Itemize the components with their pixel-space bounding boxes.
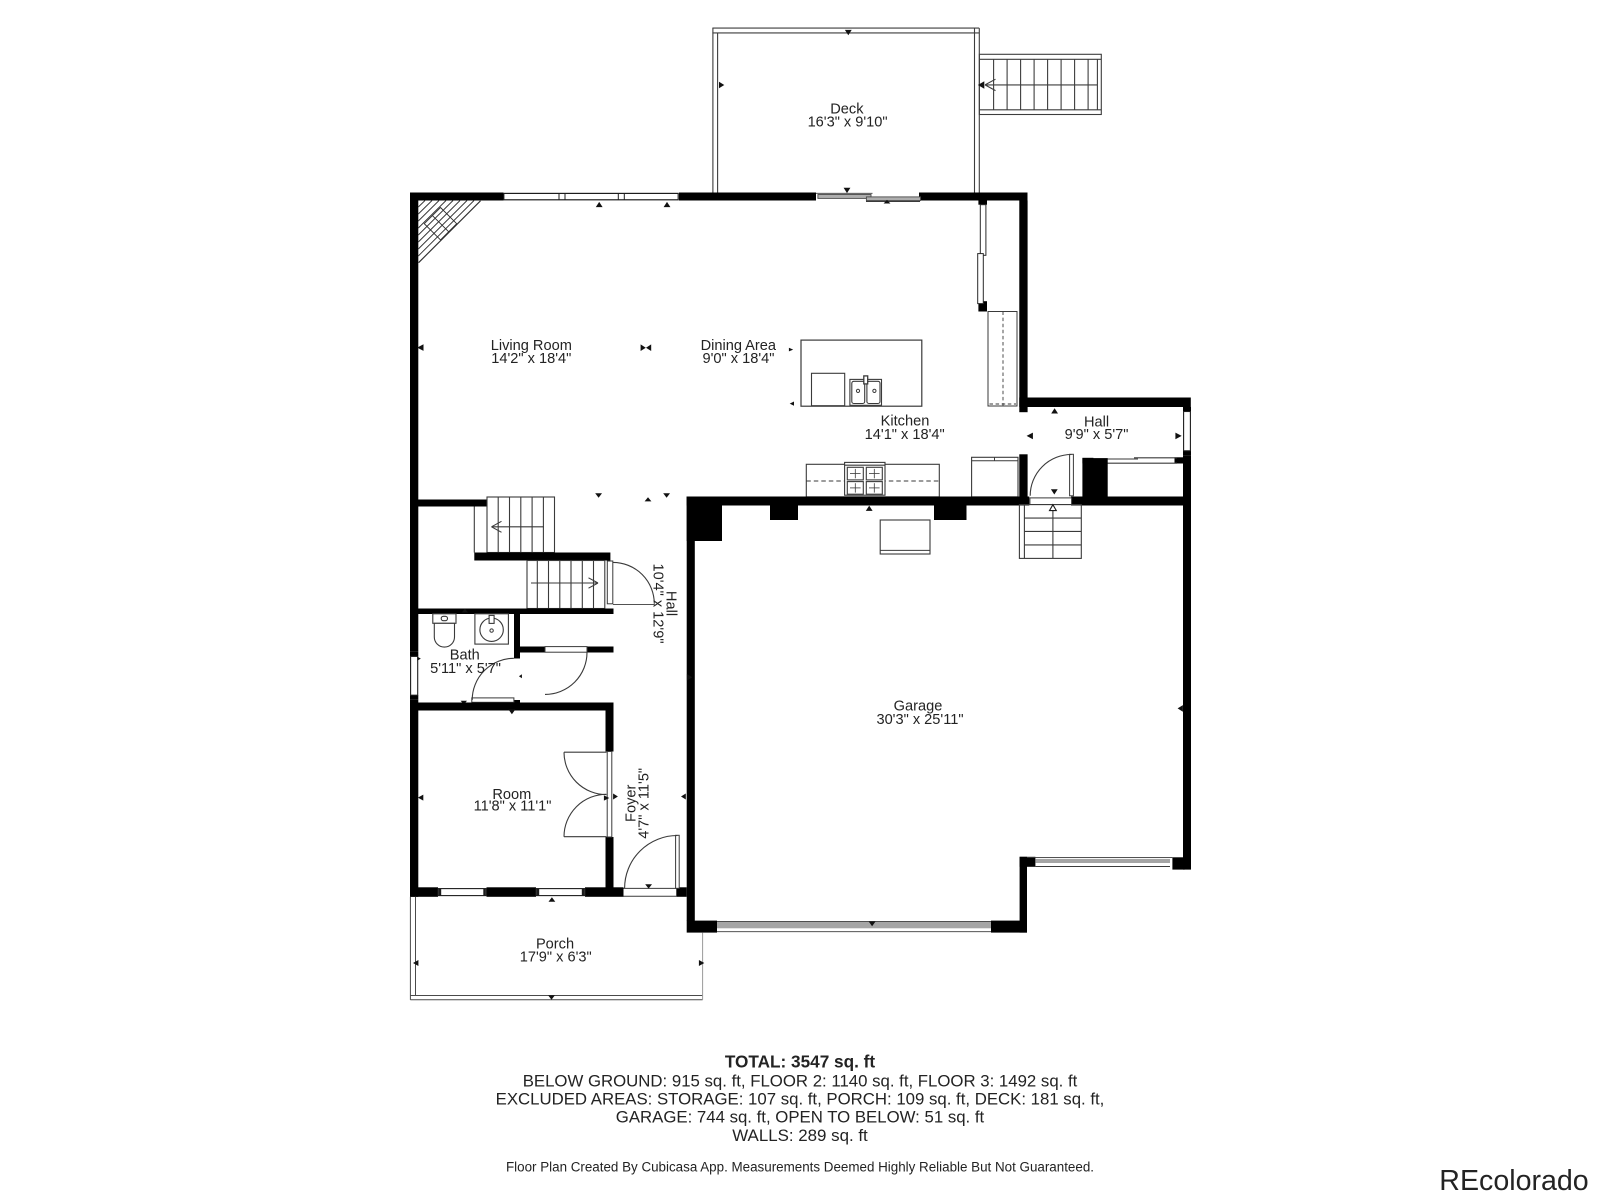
svg-text:10'4" x 12'9": 10'4" x 12'9" bbox=[649, 563, 665, 643]
svg-text:11'8" x 11'1": 11'8" x 11'1" bbox=[474, 799, 552, 815]
svg-text:EXCLUDED AREAS: STORAGE: 107 s: EXCLUDED AREAS: STORAGE: 107 sq. ft, POR… bbox=[496, 1090, 1105, 1109]
svg-text:TOTAL: 3547 sq. ft: TOTAL: 3547 sq. ft bbox=[725, 1052, 876, 1072]
svg-text:30'3" x 25'11": 30'3" x 25'11" bbox=[876, 712, 963, 728]
svg-text:17'9" x 6'3": 17'9" x 6'3" bbox=[520, 949, 592, 965]
svg-text:14'2" x 18'4": 14'2" x 18'4" bbox=[491, 351, 571, 367]
svg-text:9'0" x 18'4": 9'0" x 18'4" bbox=[703, 351, 775, 367]
svg-text:4'7" x 11'5": 4'7" x 11'5" bbox=[637, 768, 653, 839]
svg-text:14'1" x 18'4": 14'1" x 18'4" bbox=[865, 427, 945, 443]
svg-text:BELOW GROUND: 915 sq. ft, FLOO: BELOW GROUND: 915 sq. ft, FLOOR 2: 1140 … bbox=[523, 1071, 1078, 1090]
svg-text:Floor Plan Created By Cubicasa: Floor Plan Created By Cubicasa App. Meas… bbox=[506, 1160, 1094, 1175]
svg-text:REcolorado: REcolorado bbox=[1439, 1165, 1588, 1197]
svg-text:16'3" x 9'10": 16'3" x 9'10" bbox=[808, 115, 888, 131]
svg-text:GARAGE: 744 sq. ft, OPEN TO BE: GARAGE: 744 sq. ft, OPEN TO BELOW: 51 sq… bbox=[616, 1108, 985, 1127]
svg-text:9'9" x 5'7": 9'9" x 5'7" bbox=[1065, 427, 1129, 443]
svg-text:5'11" x 5'7": 5'11" x 5'7" bbox=[430, 661, 501, 677]
svg-text:WALLS: 289 sq. ft: WALLS: 289 sq. ft bbox=[732, 1126, 868, 1145]
